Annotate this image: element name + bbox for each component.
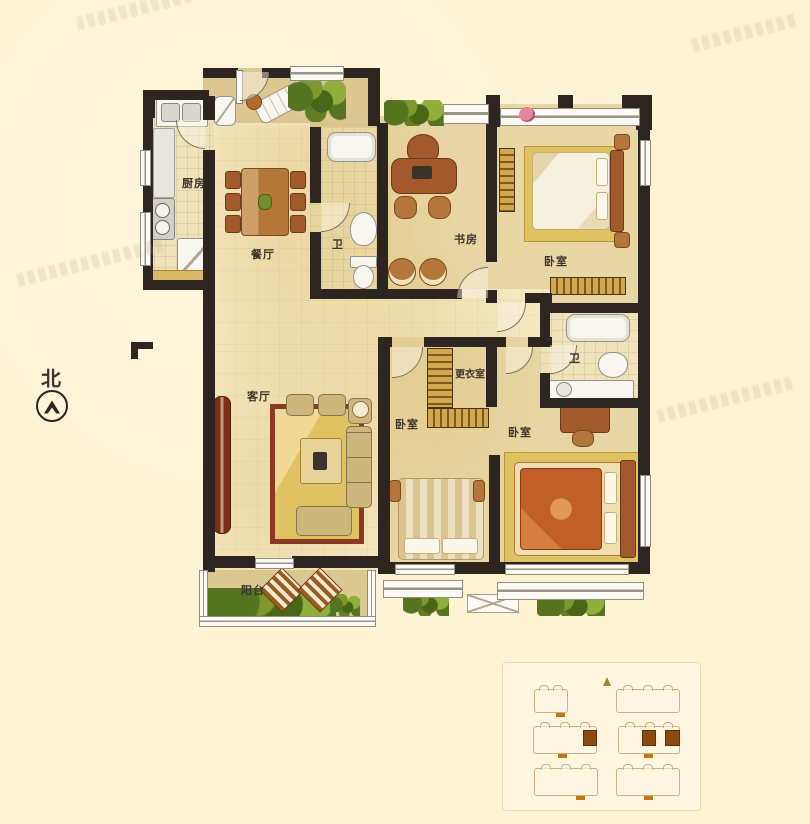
building-bump (623, 764, 633, 770)
room-label-bath-right: 卫 (569, 350, 581, 366)
site-compass-icon (603, 677, 611, 686)
wall-segment (310, 232, 321, 293)
room-label-bedroom-mid: 卧室 (395, 416, 419, 432)
building-bump (645, 722, 655, 728)
planter-box (384, 100, 444, 126)
building-bump (663, 764, 673, 770)
wall-segment (540, 398, 650, 408)
building-bump (561, 764, 571, 770)
sofa-chaise (296, 506, 352, 536)
window (140, 150, 151, 186)
dining-chair (225, 215, 241, 233)
shoe-cabinet (214, 96, 236, 126)
table-decor (313, 452, 327, 470)
pillow (442, 538, 478, 554)
pillow (596, 158, 608, 186)
highlighted-unit (665, 730, 680, 746)
balcony-door (255, 558, 294, 569)
wall-segment (203, 556, 255, 568)
wall-segment (489, 455, 500, 572)
site-marker (558, 754, 567, 758)
window (395, 564, 455, 575)
closet-shelf (427, 408, 489, 428)
wall-segment (203, 96, 215, 120)
sofa-seat (318, 394, 346, 416)
tv-cabinet (213, 396, 231, 534)
site-building (616, 689, 680, 713)
building-bump (580, 722, 590, 728)
pillow (604, 512, 617, 544)
watermark (655, 375, 794, 423)
window-sill (383, 580, 463, 598)
bath-sink (556, 382, 572, 397)
headboard (610, 150, 624, 232)
wall-post (622, 95, 636, 109)
window (505, 564, 629, 575)
room-label-bedroom-right: 卧室 (508, 424, 532, 440)
building-bump (581, 764, 591, 770)
stove-burner (155, 203, 170, 218)
wall-segment (203, 68, 238, 78)
window (443, 104, 489, 124)
wall-post (558, 95, 573, 109)
guest-chair (394, 196, 417, 219)
armchair (388, 258, 416, 286)
site-building (616, 768, 680, 796)
compass-arrow-icon (44, 401, 60, 414)
nightstand (614, 232, 630, 248)
site-marker (556, 713, 565, 717)
guest-chair (428, 196, 451, 219)
dining-chair (290, 171, 306, 189)
wall-segment (528, 337, 552, 347)
desk (560, 405, 610, 433)
wall-segment (292, 556, 380, 568)
dining-chair (225, 171, 241, 189)
wall-segment (486, 337, 497, 407)
sofa-right (346, 426, 372, 508)
wall-stub (131, 342, 138, 359)
building-bump (625, 722, 635, 728)
highlighted-unit (583, 730, 597, 746)
window (640, 475, 651, 547)
balcony-rail (199, 616, 376, 627)
nightstand (389, 480, 401, 502)
wall-segment (203, 150, 215, 572)
site-marker (576, 796, 585, 800)
building-bump (541, 764, 551, 770)
pillow (404, 538, 440, 554)
pillow (604, 472, 617, 504)
window (290, 66, 344, 81)
room-label-bath-top: 卫 (332, 236, 344, 252)
wall-segment (486, 116, 497, 262)
stove-burner (155, 220, 170, 235)
bath-sink (350, 212, 377, 246)
window-sill (497, 582, 644, 600)
site-building (534, 689, 568, 713)
room-label-dressing: 更衣室 (455, 366, 485, 381)
pillow (596, 192, 608, 220)
desk-chair (572, 430, 594, 447)
wall-segment (378, 337, 390, 572)
site-marker (644, 754, 653, 758)
north-label: 北 (41, 363, 61, 392)
wall-segment (310, 127, 321, 203)
wardrobe (499, 148, 515, 212)
dining-chair (225, 193, 241, 211)
window (640, 140, 651, 186)
watermark (690, 12, 800, 53)
room-label-balcony: 阳台 (241, 582, 265, 598)
laptop (412, 166, 432, 179)
wall-segment (377, 123, 388, 297)
nightstand (614, 134, 630, 150)
building-bump (663, 722, 673, 728)
dining-chair (290, 215, 306, 233)
site-building (534, 768, 598, 796)
room-label-kitchen: 厨房 (182, 175, 206, 191)
floorplan-image: 北 厨房 餐厅 卫 书房 卧室 客厅 更衣室 卫 卧室 卧室 阳台 (0, 0, 810, 824)
building-bump (643, 764, 653, 770)
building-bump (553, 685, 563, 691)
bed-duvet (520, 468, 602, 550)
building-bump (663, 685, 673, 691)
bathtub (327, 132, 376, 162)
building-bump (643, 685, 653, 691)
nightstand (473, 480, 485, 502)
site-plan (502, 662, 701, 811)
wall-segment (540, 303, 650, 313)
wall-segment (377, 289, 462, 299)
bathtub (566, 314, 630, 342)
highlighted-unit (642, 730, 656, 746)
flower-decor (519, 107, 535, 122)
building-bump (623, 685, 633, 691)
wall-segment (368, 68, 380, 126)
room-label-dining: 餐厅 (251, 246, 275, 262)
wardrobe (427, 348, 453, 408)
headboard (620, 460, 636, 558)
entry-plants (288, 76, 346, 122)
wall-segment (310, 289, 378, 299)
north-compass (36, 390, 68, 422)
table-centerpiece (258, 194, 272, 210)
window (140, 212, 151, 266)
room-label-study: 书房 (454, 231, 478, 247)
building-bump (560, 722, 570, 728)
dining-chair (290, 193, 306, 211)
toilet-bowl (353, 265, 374, 289)
kitchen-counter (153, 128, 175, 198)
site-marker (644, 796, 653, 800)
armchair (419, 258, 447, 286)
toilet-bowl (598, 352, 628, 378)
lamp (352, 401, 369, 418)
building-bump (540, 722, 550, 728)
wall-segment (525, 293, 552, 303)
building-bump (539, 685, 549, 691)
watermark (75, 0, 195, 31)
dresser (550, 277, 626, 295)
room-label-bedroom-master: 卧室 (544, 253, 568, 269)
room-label-living: 客厅 (247, 388, 271, 404)
sofa-seat (286, 394, 314, 416)
